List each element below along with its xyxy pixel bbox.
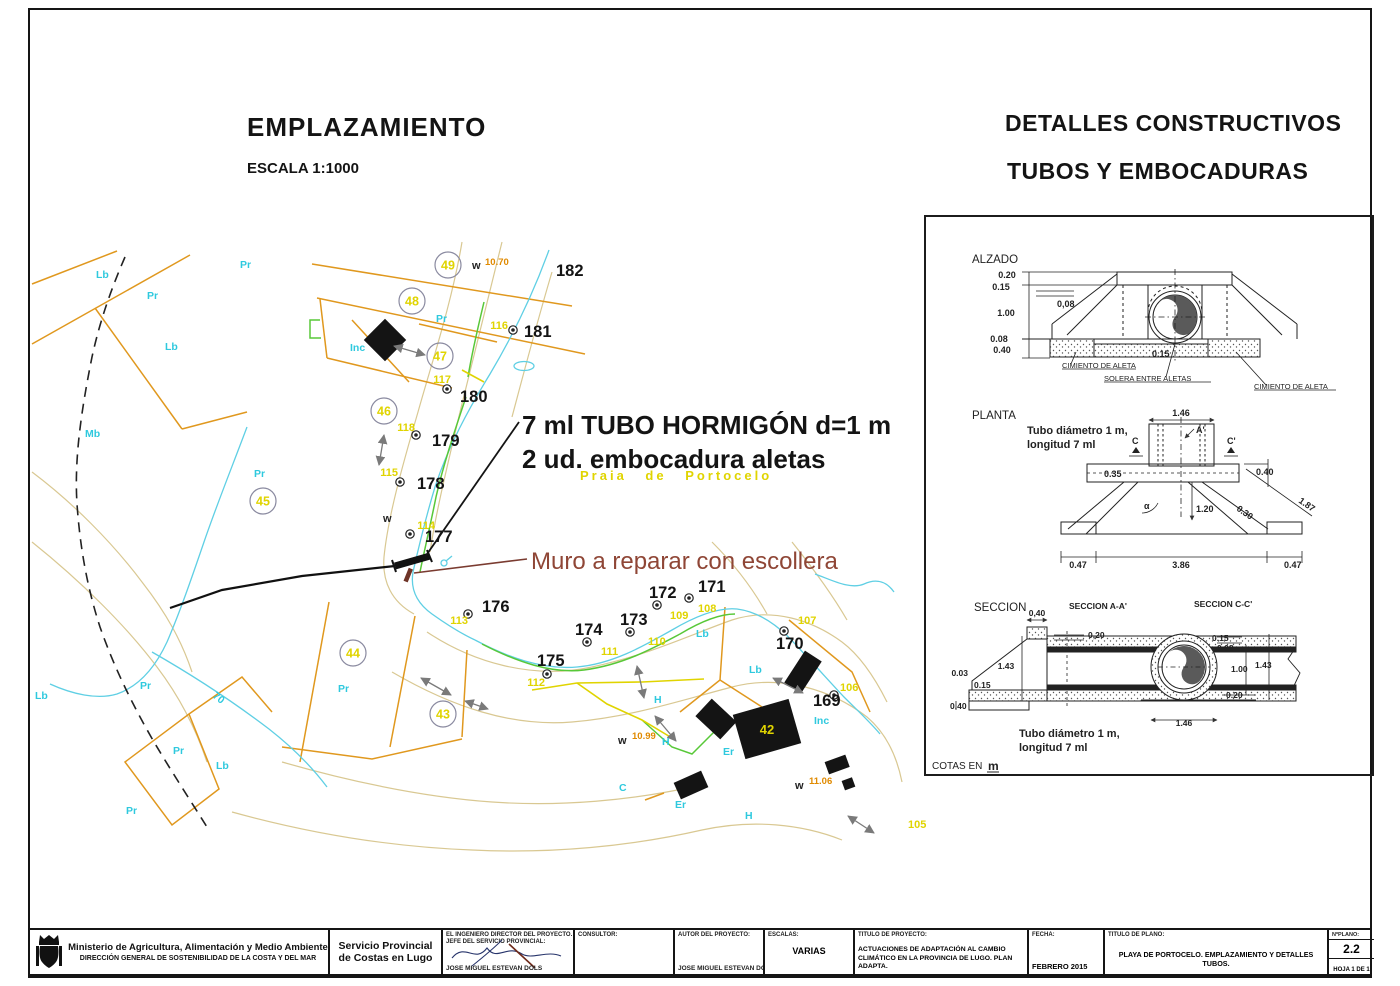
dim: 0.47 (1069, 560, 1087, 570)
point-id: 110 (648, 636, 666, 648)
titulo-plano-cell: TITULO DE PLANO: PLAYA DE PORTOCELO. EMP… (1105, 930, 1329, 974)
landuse-pr: Pr (147, 290, 158, 302)
alzado-detail: ALZADO 0.20 0.15 (972, 254, 1336, 391)
point-label: 176 (482, 598, 510, 616)
point-id: 117 (433, 374, 451, 386)
planta-detail: PLANTA Tubo diámetro 1 m, longitud 7 ml … (972, 408, 1317, 570)
point-id: 105 (908, 819, 926, 831)
dim: 1.20 (1196, 504, 1214, 514)
seccion-aa-title: SECCION A-A' (1069, 601, 1127, 611)
tube-annotation: 7 ml TUBO HORMIGÓN d=1 m 2 ud. embocadur… (425, 410, 891, 557)
landuse-er: Er (675, 799, 686, 811)
landuse-h: H (654, 694, 662, 706)
dim: 1.87 (1297, 495, 1317, 513)
plot-number-42: 42 (760, 722, 774, 737)
point-id: 113 (450, 615, 468, 627)
service-line1: Servicio Provincial (330, 940, 441, 952)
num-plano-cell: NºPLANO: 2.2 HOJA 1 DE 1 (1329, 930, 1374, 974)
titulo-proyecto-line1: ACTUACIONES DE ADAPTACIÓN AL CAMBIO (858, 946, 1006, 953)
landuse-h: H (662, 736, 670, 748)
point-label: 179 (432, 432, 460, 450)
details-panel: ALZADO 0.20 0.15 (924, 215, 1374, 776)
hoja-label: HOJA 1 DE 1 (1329, 967, 1374, 973)
tube-segment (392, 550, 432, 572)
cotas-unit: m (988, 759, 999, 773)
seccion-detail: SECCION SECCION A-A' SECCION C-C' 0 (932, 599, 1300, 773)
section-marker-c2: C' (1227, 436, 1236, 446)
map-scale-label: ESCALA 1:1000 (247, 160, 359, 177)
autor-label: AUTOR DEL PROYECTO: (675, 930, 763, 939)
point-label: 170 (776, 635, 804, 653)
director-cell: EL INGENIERO DIRECTOR DEL PROYECTO. JEFE… (443, 930, 575, 974)
plot-number: 43 (436, 708, 450, 722)
dim: 0,40 (1029, 608, 1046, 618)
titulo-proyecto-label: TITULO DE PROYECTO: (855, 930, 1027, 939)
landuse-lb: Lb (165, 341, 178, 353)
titulo-proyecto-cell: TITULO DE PROYECTO: ACTUACIONES DE ADAPT… (855, 930, 1029, 974)
landuse-lb: Lb (96, 269, 109, 281)
w-glyph: w (382, 513, 392, 525)
point-label: 175 (537, 652, 565, 670)
dim: 0.15 (974, 680, 991, 690)
autor-name: JOSE MIGUEL ESTEVAN DOLS (678, 965, 765, 972)
planta-note1: Tubo diámetro 1 m, (1027, 425, 1128, 437)
point-id: 107 (798, 615, 816, 627)
dim: 0.40 (950, 701, 967, 711)
planta-title: PLANTA (972, 410, 1016, 422)
point-id: 116 (490, 320, 508, 332)
point-label: 173 (620, 611, 648, 629)
landuse-lb: Lb (35, 690, 48, 702)
dim: 0.08 (1217, 643, 1234, 653)
dim: 0.40 (1256, 467, 1274, 477)
site-map: 182 181 180 179 178 177 176 175 174 173 … (32, 242, 932, 872)
fecha-cell: FECHA: FEBRERO 2015 (1029, 930, 1105, 974)
w-glyph: w (794, 780, 804, 792)
point-id: 115 (380, 467, 398, 479)
landuse-pr: Pr (436, 313, 447, 325)
dim: 1.46 (1176, 718, 1193, 728)
point-id: 106 (840, 682, 858, 694)
elevation-value: 10.70 (485, 257, 509, 268)
section-marker-c: C (1132, 436, 1139, 446)
ministry-cell: Ministerio de Agricultura, Alimentación … (30, 930, 330, 974)
map-title: EMPLAZAMIENTO (247, 112, 486, 143)
plot-number: 48 (405, 295, 419, 309)
num-plano-value: 2.2 (1329, 939, 1374, 959)
plot-number: 46 (377, 405, 391, 419)
fecha-value: FEBRERO 2015 (1032, 962, 1087, 971)
title-block: Ministerio de Agricultura, Alimentación … (30, 928, 1370, 974)
dim: 0.20 (998, 270, 1016, 280)
ministry-name: Ministerio de Agricultura, Alimentación … (68, 942, 328, 953)
landuse-inc: Inc (814, 715, 829, 727)
dim: 0.30 (1235, 503, 1255, 521)
point-label: 181 (524, 323, 552, 341)
seccion-note1: Tubo diámetro 1 m, (1019, 728, 1120, 740)
drawing-sheet-frame: EMPLAZAMIENTO ESCALA 1:1000 DETALLES CON… (28, 8, 1372, 978)
landuse-er: Er (723, 746, 734, 758)
planta-note2: longitud 7 ml (1027, 439, 1095, 451)
plot-number: 47 (433, 350, 447, 364)
dim: 0.15 (1152, 349, 1170, 359)
dim: 0,20 (1088, 630, 1105, 640)
w-glyph: w (471, 260, 481, 272)
point-id: 111 (601, 646, 618, 658)
dim: 0.15 (1212, 633, 1229, 643)
point-label: 171 (698, 578, 726, 596)
dim: 1.00 (1231, 664, 1248, 674)
titulo-plano-label: TITULO DE PLANO: (1105, 930, 1327, 939)
elevation-value: 10.99 (632, 731, 656, 742)
muro-tick (404, 568, 413, 583)
landuse-inc: Inc (350, 342, 365, 354)
landuse-pr: Pr (254, 468, 265, 480)
cotas-label: COTAS EN (932, 761, 982, 772)
point-label: 180 (460, 388, 488, 406)
ministry-direction: DIRECCIÓN GENERAL DE SOSTENIBILIDAD DE L… (68, 955, 328, 962)
dim: 0,08 (1057, 299, 1075, 309)
point-label: 172 (649, 584, 677, 602)
num-plano-label: NºPLANO: (1329, 930, 1374, 939)
contour-lines (32, 242, 902, 851)
service-cell: Servicio Provincial de Costas en Lugo (330, 930, 443, 974)
elevation-value: 11.06 (809, 776, 832, 787)
point-id: 114 (417, 520, 436, 532)
w-glyph: w (617, 735, 627, 747)
existing-wall-line (170, 566, 395, 608)
seccion-note2: longitud 7 ml (1019, 742, 1087, 754)
section-marker-a: A' (1196, 425, 1205, 435)
dim: 0.47 (1284, 560, 1302, 570)
landuse-70: 70 (210, 690, 227, 707)
details-title-line2: TUBOS Y EMBOCADURAS (1007, 158, 1308, 185)
seccion-cc-title: SECCION C-C' (1194, 599, 1252, 609)
dim: 0.15 (992, 282, 1010, 292)
titulo-plano-value: PLAYA DE PORTOCELO. EMPLAZAMIENTO Y DETA… (1109, 950, 1323, 968)
landuse-lb: Lb (216, 760, 229, 772)
details-drawing: ALZADO 0.20 0.15 (926, 217, 1372, 774)
point-label: 182 (556, 262, 584, 280)
point-label: 178 (417, 475, 445, 493)
service-line2: de Costas en Lugo (330, 952, 441, 964)
director-name: JOSE MIGUEL ESTEVAN DOLS (446, 965, 542, 972)
alzado-title: ALZADO (972, 254, 1018, 266)
boundary-dashed-line (76, 257, 207, 827)
autor-cell: AUTOR DEL PROYECTO: JOSE MIGUEL ESTEVAN … (675, 930, 765, 974)
plot-number: 49 (441, 259, 455, 273)
dim: 0.03 (951, 668, 968, 678)
seccion-title: SECCION (974, 602, 1026, 614)
landuse-c: C (619, 782, 627, 794)
fecha-label: FECHA: (1029, 930, 1103, 939)
escalas-value: VARIAS (765, 946, 853, 956)
escalas-label: ESCALAS: (765, 930, 853, 939)
landuse-pr: Pr (338, 683, 349, 695)
details-title-line1: DETALLES CONSTRUCTIVOS (1005, 110, 1341, 137)
point-id: 112 (527, 677, 545, 689)
point-label: 169 (813, 692, 841, 710)
dim: 0.08 (990, 334, 1008, 344)
dim: 0.35 (1104, 469, 1122, 479)
titulo-proyecto-line2: CLIMÁTICO EN LA PROVINCIA DE LUGO. PLAN … (858, 955, 1012, 971)
dim: 0.20 (1226, 690, 1243, 700)
point-id: 118 (397, 422, 415, 434)
muro-note: Muro a reparar con escollera (531, 548, 838, 575)
plot-numbers: 49 48 47 46 45 44 43 42 (250, 252, 774, 737)
point-label: 174 (575, 621, 603, 639)
landuse-lb: Lb (749, 664, 762, 676)
dim: 1.00 (997, 308, 1015, 318)
dim-alpha: α (1144, 501, 1150, 511)
point-id: 108 (698, 603, 716, 615)
plot-number: 45 (256, 495, 270, 509)
landuse-lb: Lb (696, 628, 709, 640)
dim: 0.40 (993, 345, 1011, 355)
landuse-pr: Pr (173, 745, 184, 757)
consultor-cell: CONSULTOR: (575, 930, 675, 974)
landuse-mb: Mb (85, 428, 100, 440)
consultor-label: CONSULTOR: (575, 930, 673, 939)
landuse-pr: Pr (240, 259, 251, 271)
landuse-pr: Pr (140, 680, 151, 692)
dim: 1.43 (1255, 660, 1272, 670)
tube-note-line2: 2 ud. embocadura aletas (522, 444, 825, 474)
landuse-pr: Pr (126, 805, 137, 817)
dim: 3.86 (1172, 560, 1190, 570)
ministry-text: Ministerio de Agricultura, Alimentación … (68, 942, 328, 962)
plot-number: 44 (346, 647, 360, 661)
escalas-cell: ESCALAS: VARIAS (765, 930, 855, 974)
tube-note-line1: 7 ml TUBO HORMIGÓN d=1 m (522, 410, 891, 440)
landuse-h: H (745, 810, 753, 822)
survey-markers (396, 326, 838, 699)
dim: 1.43 (998, 661, 1015, 671)
signature (447, 938, 567, 968)
spain-coat-of-arms-logo (36, 933, 62, 971)
muro-annotation: Muro a reparar con escollera (414, 548, 838, 575)
point-id: 109 (670, 610, 688, 622)
dim: 1.46 (1172, 408, 1190, 418)
